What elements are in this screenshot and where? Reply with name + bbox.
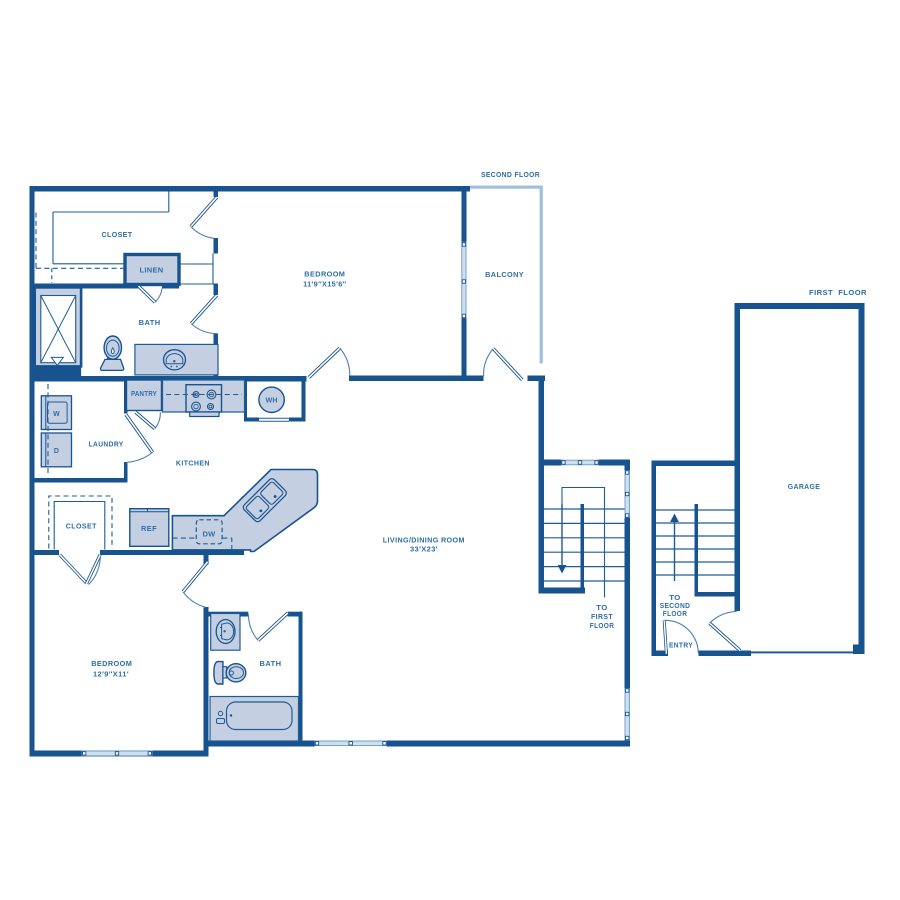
svg-text:BALCONY: BALCONY	[485, 270, 524, 279]
svg-text:LIVING/DINING ROOM: LIVING/DINING ROOM	[383, 535, 465, 544]
svg-text:BATH: BATH	[260, 659, 282, 668]
svg-text:FIRST FLOOR: FIRST FLOOR	[809, 288, 867, 297]
svg-text:FLOOR: FLOOR	[590, 621, 615, 630]
svg-text:CLOSET: CLOSET	[66, 522, 97, 531]
svg-text:LINEN: LINEN	[140, 266, 164, 275]
svg-text:REF: REF	[141, 524, 157, 533]
svg-text:TO: TO	[596, 603, 608, 612]
svg-text:BEDROOM: BEDROOM	[91, 659, 132, 668]
svg-text:W: W	[53, 411, 60, 418]
svg-text:D: D	[54, 448, 59, 455]
svg-text:CLOSET: CLOSET	[102, 230, 133, 239]
svg-text:11′9″X15′6″: 11′9″X15′6″	[303, 280, 346, 289]
svg-text:FLOOR: FLOOR	[663, 609, 688, 618]
svg-text:BEDROOM: BEDROOM	[304, 269, 345, 278]
svg-text:WH: WH	[266, 398, 278, 405]
svg-text:ENTRY: ENTRY	[669, 641, 693, 650]
svg-text:33′X23′: 33′X23′	[410, 545, 438, 554]
svg-text:FIRST: FIRST	[591, 612, 613, 621]
svg-text:SECOND FLOOR: SECOND FLOOR	[481, 170, 540, 179]
svg-text:12′9″X11′: 12′9″X11′	[93, 669, 129, 678]
svg-text:GARAGE: GARAGE	[788, 482, 821, 491]
svg-text:KITCHEN: KITCHEN	[176, 459, 210, 468]
svg-text:BATH: BATH	[139, 318, 161, 327]
svg-text:PANTRY: PANTRY	[131, 391, 157, 398]
svg-text:LAUNDRY: LAUNDRY	[89, 440, 124, 449]
svg-text:DW: DW	[202, 530, 216, 539]
